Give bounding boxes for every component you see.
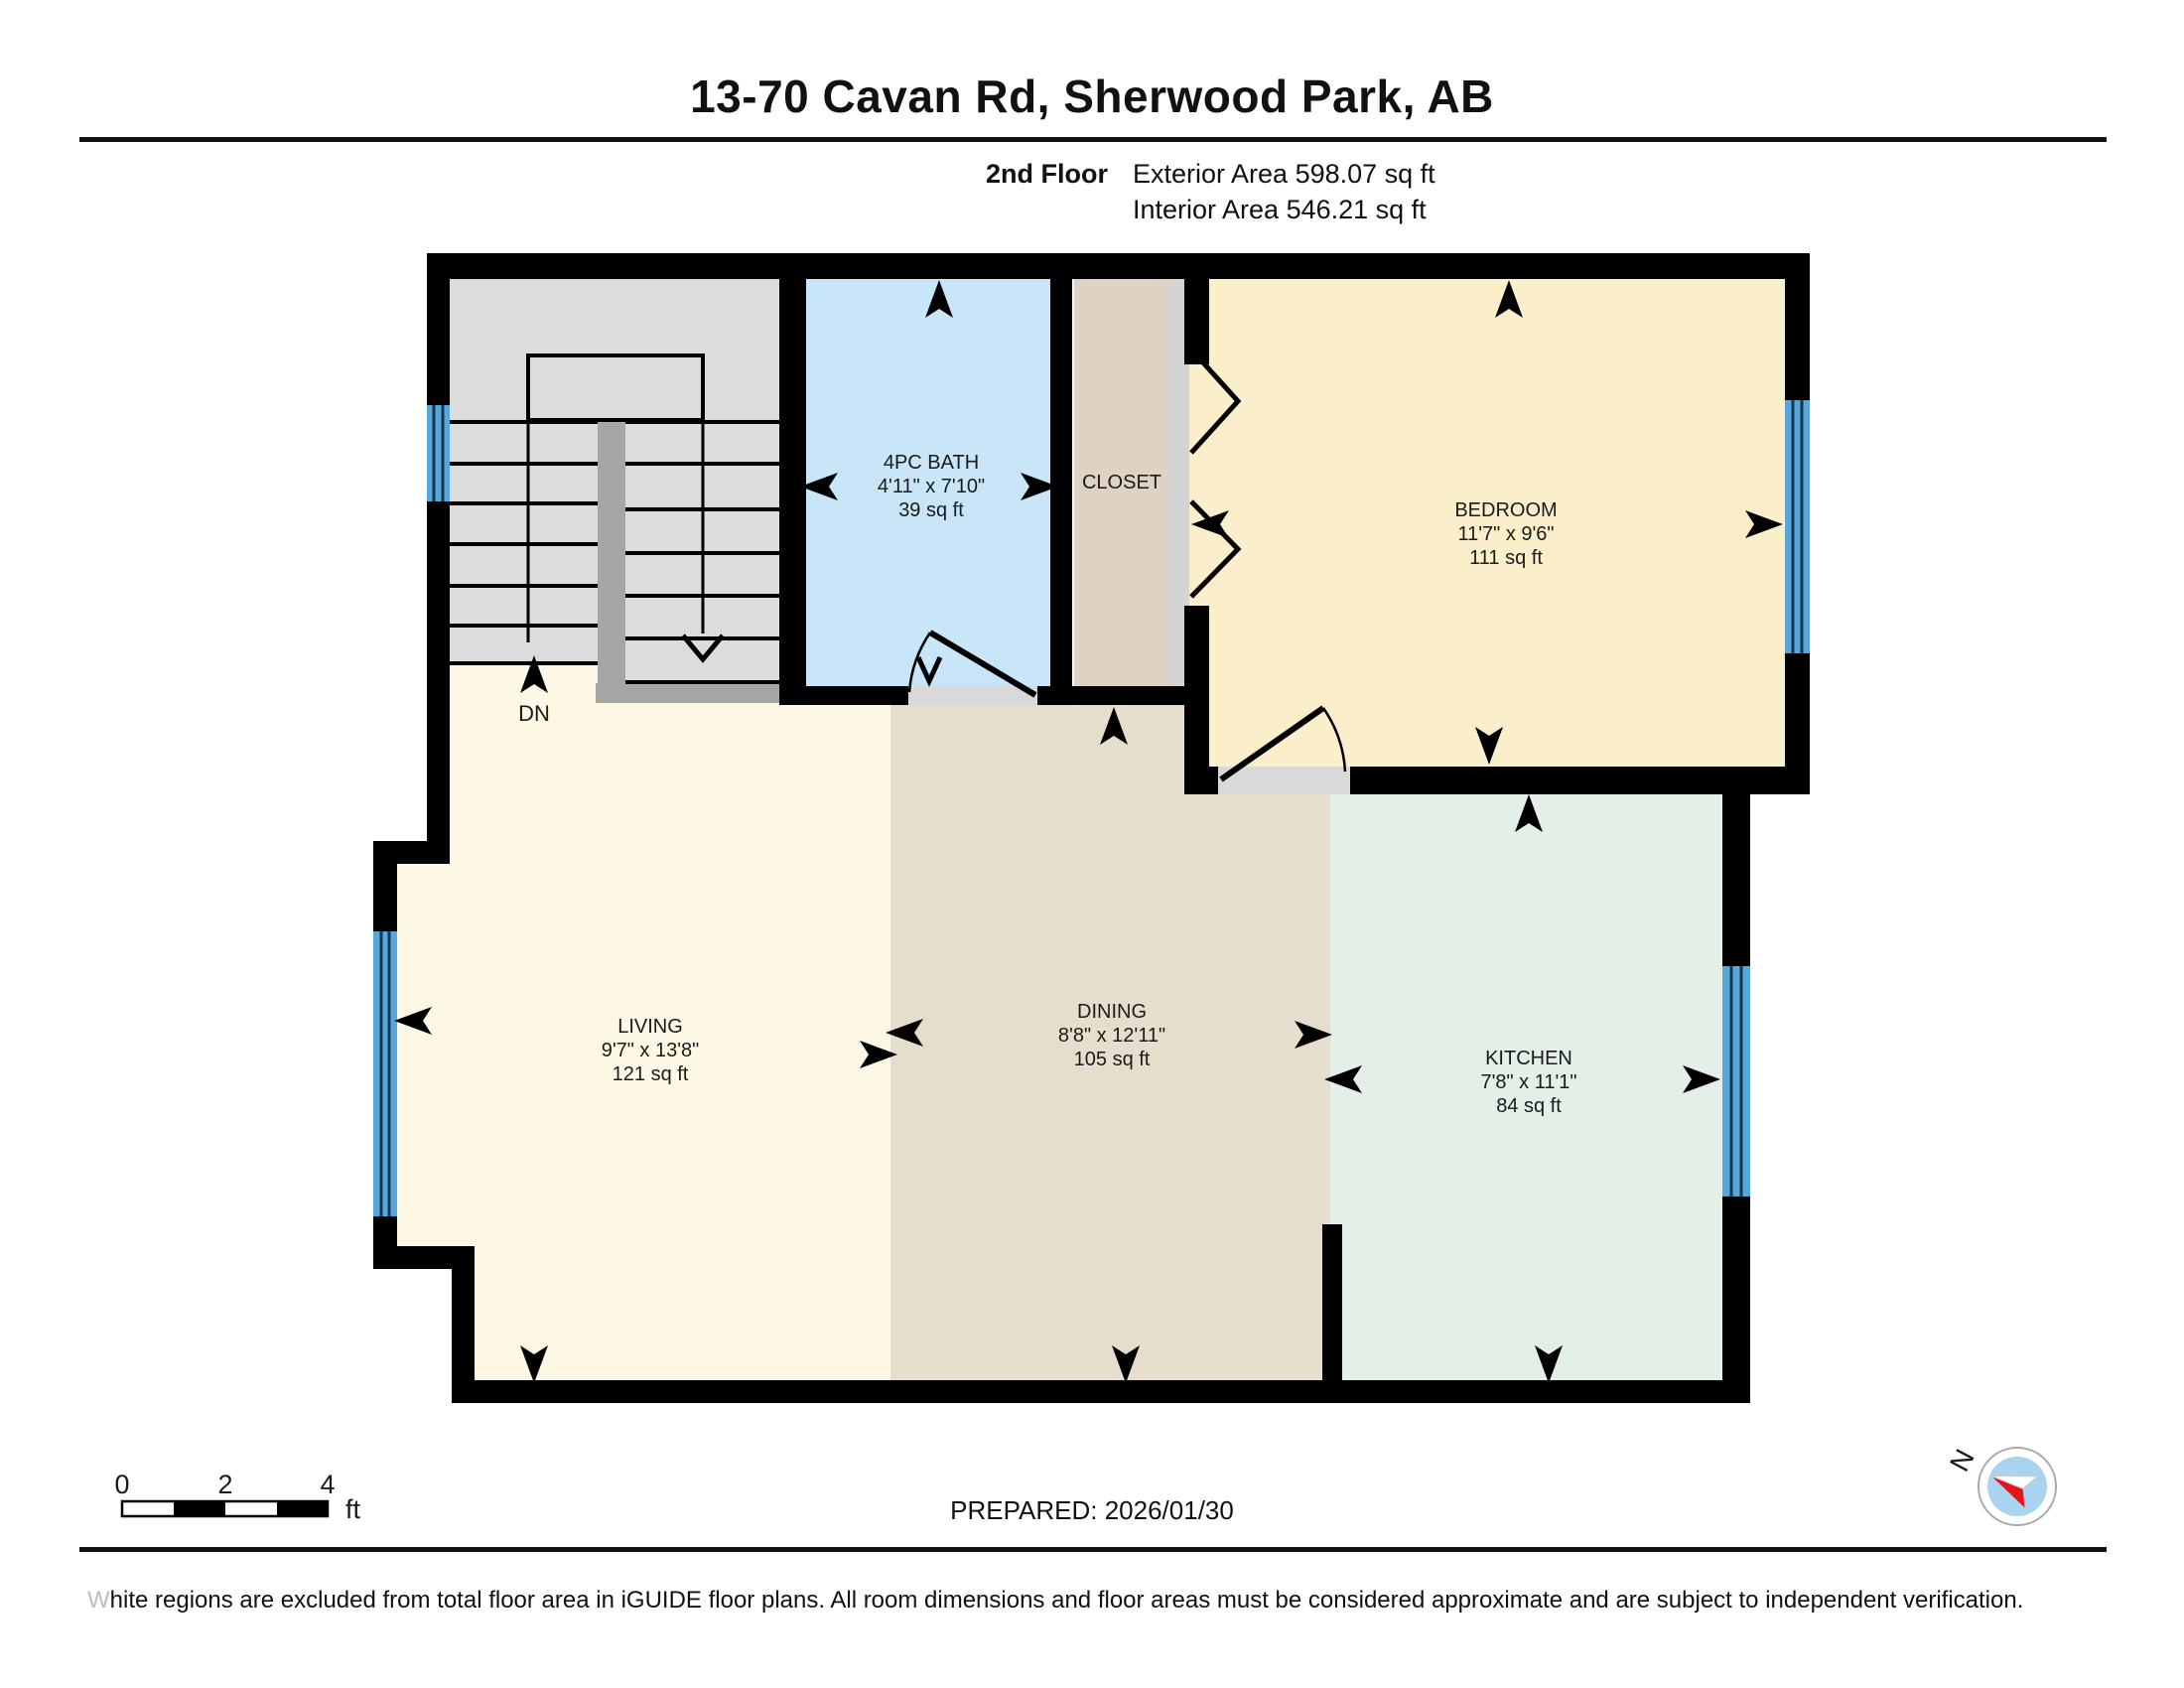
bath-door-threshold	[908, 686, 1037, 705]
footer-divider	[79, 1547, 2107, 1552]
stairs-dn-label: DN	[518, 701, 550, 726]
bedroom-window	[1785, 400, 1810, 653]
wall-top	[427, 253, 1810, 279]
disclaimer-text: White regions are excluded from total fl…	[87, 1587, 2023, 1615]
wall-left-upper	[427, 253, 450, 864]
wall-bedroom-left-top	[1184, 253, 1209, 364]
kitchen-sqft: 84 sq ft	[1496, 1095, 1562, 1117]
bath-dims: 4'11" x 7'10"	[878, 476, 985, 497]
bath-label: 4PC BATH	[884, 452, 979, 474]
compass-north-label: N	[1944, 1444, 1980, 1476]
wall-bottom	[452, 1380, 1750, 1403]
floor-plan-canvas: 4PC BATH 4'11" x 7'10" 39 sq ft CLOSET B…	[0, 0, 2184, 1688]
kitchen-dims: 7'8" x 11'1"	[1480, 1071, 1576, 1093]
dining-dims: 8'8" x 12'11"	[1058, 1025, 1165, 1047]
kitchen-label: KITCHEN	[1485, 1048, 1572, 1069]
living-window	[373, 931, 397, 1216]
disclaimer-body: hite regions are excluded from total flo…	[110, 1587, 2024, 1614]
wall-bedroom-left-bottom	[1184, 606, 1209, 794]
stair-railing-bottom	[596, 683, 779, 703]
bedroom-area	[1189, 276, 1785, 767]
wall-bath-closet	[1050, 253, 1072, 705]
living-label: LIVING	[617, 1016, 683, 1038]
stair-railing	[598, 420, 625, 703]
bath-sqft: 39 sq ft	[898, 499, 964, 521]
stair-window	[427, 405, 450, 501]
wall-notch-step	[373, 1246, 475, 1269]
dining-sqft: 105 sq ft	[1074, 1049, 1151, 1070]
living-dims: 9'7" x 13'8"	[602, 1040, 700, 1061]
wall-bath-bottom-left	[779, 686, 908, 705]
floor-plan-page: 13-70 Cavan Rd, Sherwood Park, AB 2nd Fl…	[0, 0, 2184, 1688]
living-sqft: 121 sq ft	[613, 1063, 689, 1085]
dining-label: DINING	[1077, 1001, 1147, 1023]
wall-stair-bath	[779, 253, 806, 705]
disclaimer-lead: W	[87, 1587, 110, 1614]
bedroom-label: BEDROOM	[1454, 499, 1557, 521]
bedroom-dims: 11'7" x 9'6"	[1457, 523, 1554, 545]
closet-label: CLOSET	[1082, 472, 1161, 493]
prepared-date: PREPARED: 2026/01/30	[0, 1495, 2184, 1526]
bedroom-sqft: 111 sq ft	[1469, 547, 1543, 569]
wall-dining-kitchen-stub	[1322, 1224, 1342, 1380]
kitchen-window	[1722, 966, 1750, 1196]
wall-closet-bottom	[1074, 686, 1189, 705]
